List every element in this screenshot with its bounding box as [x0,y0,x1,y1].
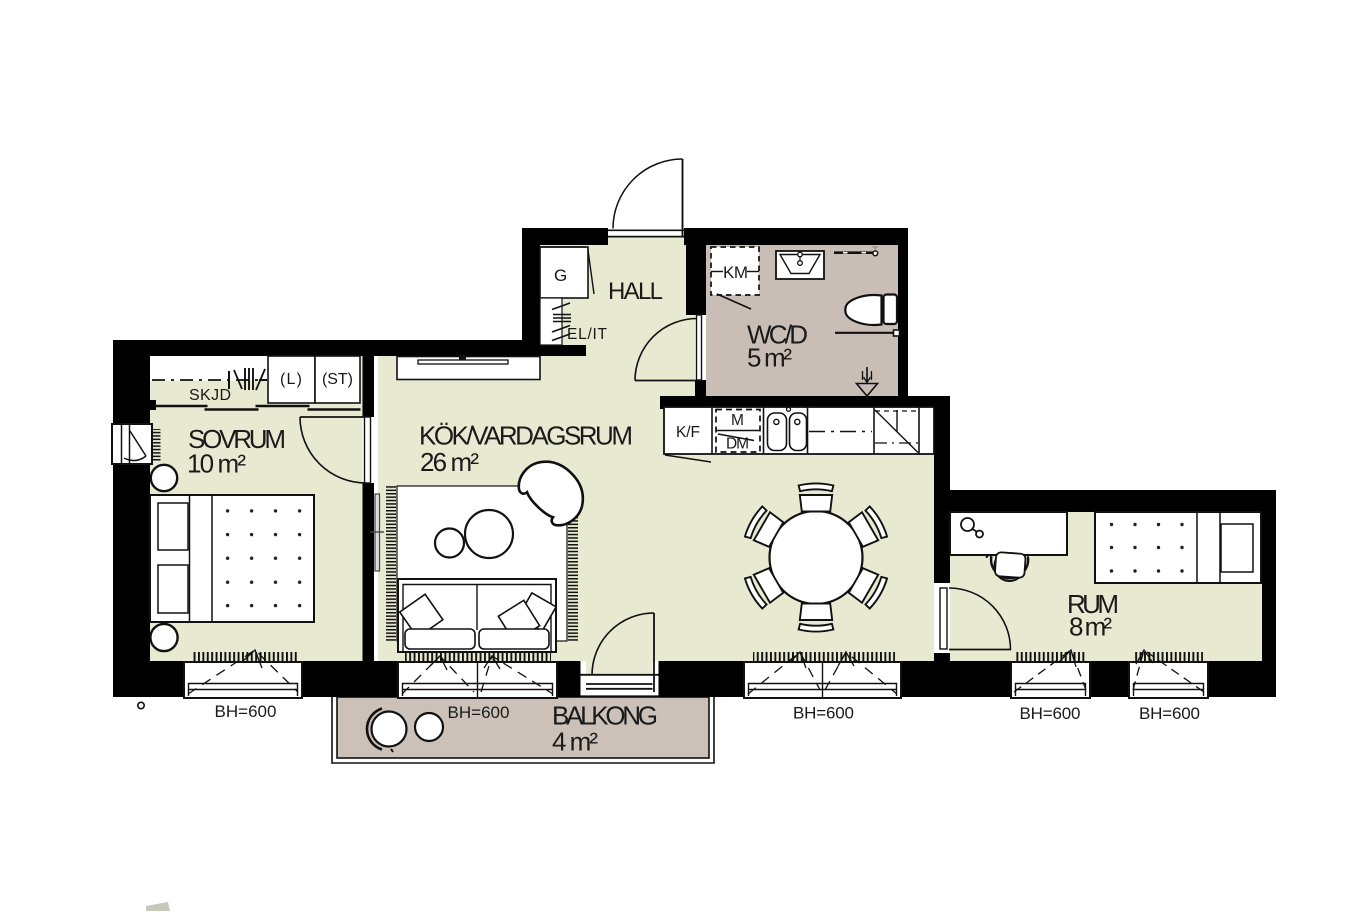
svg-text:4 m²: 4 m² [552,727,598,757]
svg-text:(L): (L) [280,371,302,388]
svg-text:HALL: HALL [608,278,663,305]
svg-text:BH=600: BH=600 [1020,704,1081,723]
svg-text:EL/IT: EL/IT [567,326,608,343]
svg-text:M: M [731,412,744,429]
svg-text:KÖK/VARDAGSRUM: KÖK/VARDAGSRUM [419,421,633,451]
svg-text:G: G [554,266,567,285]
svg-text:DM: DM [726,436,749,453]
svg-text:8 m²: 8 m² [1069,612,1112,642]
svg-text:BH=600: BH=600 [793,704,854,723]
svg-text:BH=600: BH=600 [448,703,510,722]
svg-text:5 m²: 5 m² [747,343,792,373]
svg-text:KM: KM [723,263,748,282]
svg-text:SKJD: SKJD [189,387,231,404]
svg-text:K/F: K/F [676,424,700,441]
svg-text:(ST): (ST) [322,371,353,388]
svg-text:10 m²: 10 m² [187,449,246,479]
svg-text:BH=600: BH=600 [1139,704,1200,723]
svg-text:26 m²: 26 m² [420,447,479,477]
svg-text:BH=600: BH=600 [215,702,277,721]
